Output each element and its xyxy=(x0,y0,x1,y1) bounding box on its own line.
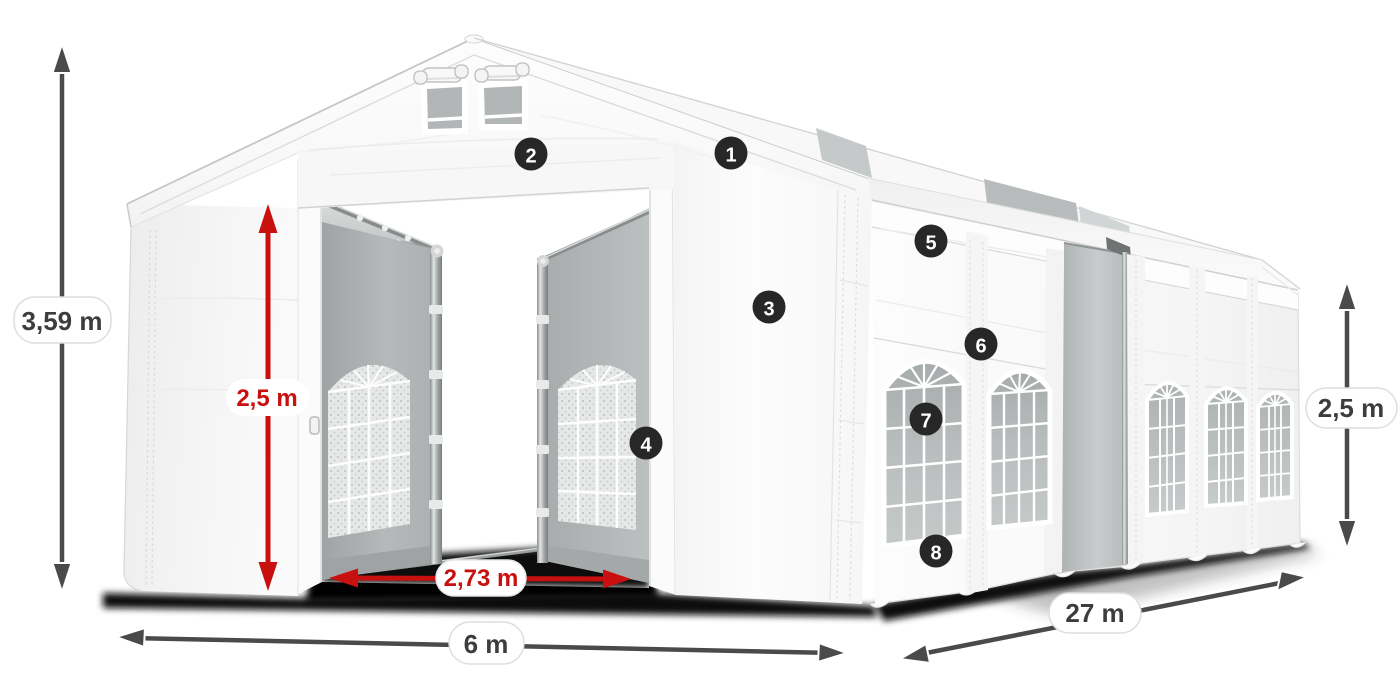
svg-text:27 m: 27 m xyxy=(1065,598,1124,628)
svg-text:7: 7 xyxy=(920,411,931,433)
svg-text:6 m: 6 m xyxy=(464,629,509,659)
svg-text:3: 3 xyxy=(763,299,774,321)
svg-text:5: 5 xyxy=(925,233,936,255)
svg-text:2,5 m: 2,5 m xyxy=(1318,393,1385,423)
svg-text:3,59 m: 3,59 m xyxy=(22,306,103,336)
svg-text:2,5 m: 2,5 m xyxy=(236,385,297,412)
svg-text:6: 6 xyxy=(975,336,986,358)
svg-text:4: 4 xyxy=(640,435,652,457)
svg-text:8: 8 xyxy=(930,543,941,565)
svg-text:2,73 m: 2,73 m xyxy=(444,565,519,592)
svg-text:1: 1 xyxy=(725,145,736,167)
svg-text:2: 2 xyxy=(525,146,536,168)
